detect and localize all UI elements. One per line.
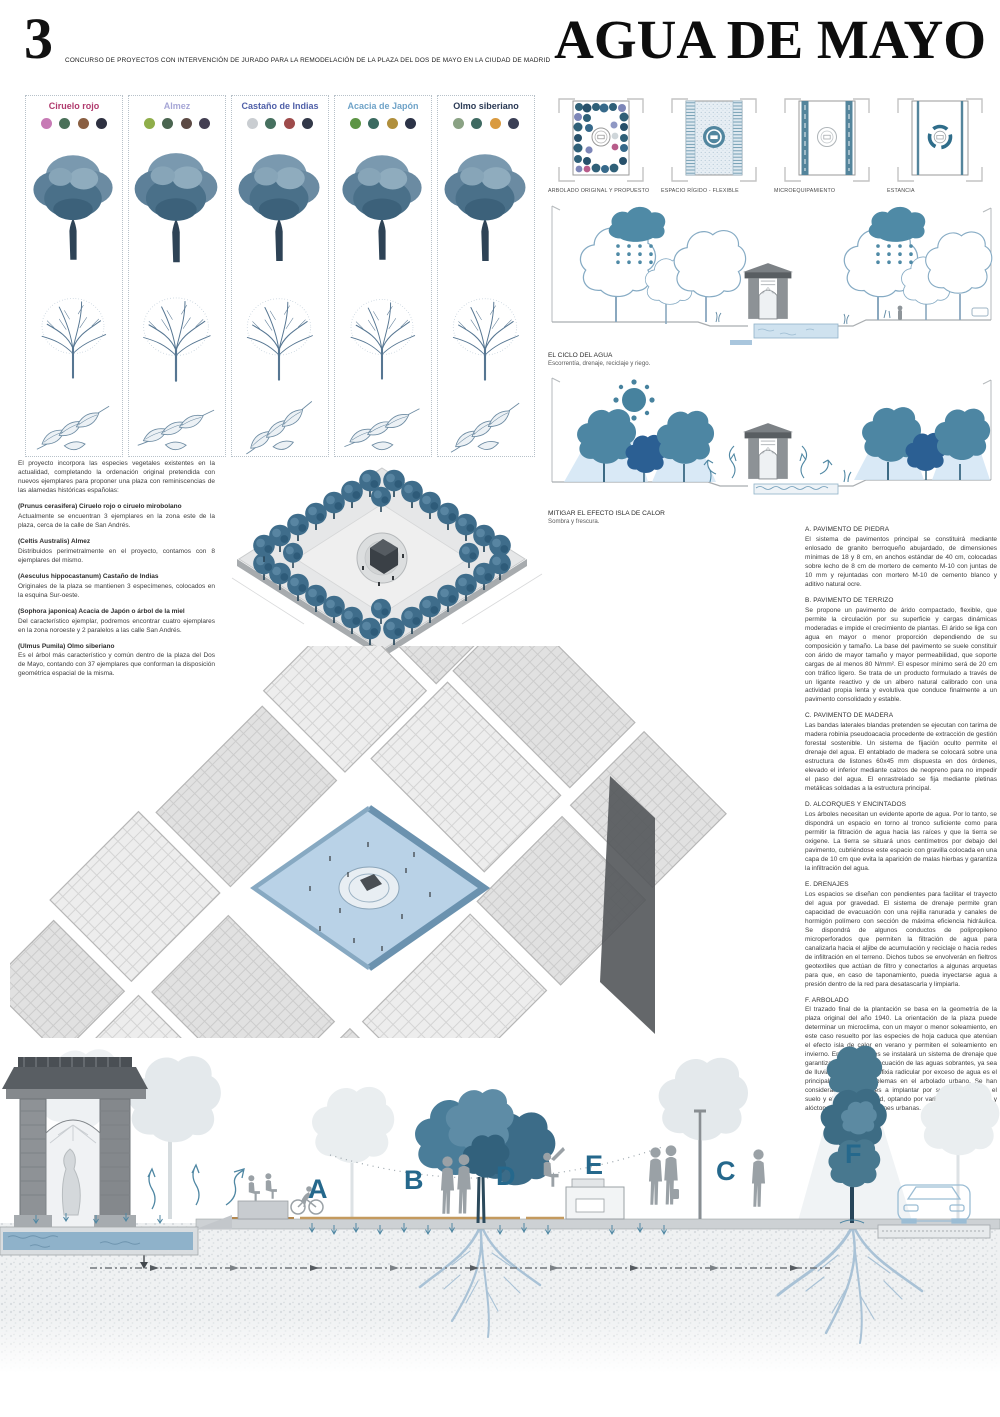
section-marker-b: B	[404, 1167, 424, 1194]
diagram-subtitle: Sombra y frescura.	[548, 518, 788, 525]
diagram-subtitle: Escorrentía, drenaje, reciclaje y riego.	[548, 360, 788, 367]
species-color-dots	[34, 118, 114, 129]
species-note-heading: (Aesculus hippocastanum) Castaño de Indi…	[18, 573, 215, 582]
competition-subtitle: CONCURSO DE PROYECTOS CON INTERVENCIÓN D…	[65, 57, 550, 64]
plan-arbolado-drawing	[548, 95, 654, 185]
plan-arbolado: ARBOLADO ORIGINAL Y PROPUESTO	[548, 95, 654, 194]
species-note: (Prunus cerasifera) Ciruelo rojo o cirue…	[18, 503, 215, 531]
water-cycle-caption: EL CICLO DEL AGUA Escorrentía, drenaje, …	[548, 352, 788, 367]
spec-section-title: D. ALCORQUES Y ENCINTADOS	[805, 801, 997, 810]
page-title: AGUA DE MAYO	[554, 12, 986, 67]
plan-espacio: ESPACIO RÍGIDO - FLEXIBLE	[661, 95, 767, 194]
species-color-dots	[137, 118, 217, 129]
spec-section: A. PAVIMENTO DE PIEDRA El sistema de pav…	[805, 526, 997, 590]
winter-tree-illustration	[438, 277, 532, 389]
winter-tree-illustration	[26, 277, 120, 389]
plan-espacio-drawing	[661, 95, 767, 185]
competition-board: 3 CONCURSO DE PROYECTOS CON INTERVENCIÓN…	[0, 0, 1000, 1417]
spec-text-column: A. PAVIMENTO DE PIEDRA El sistema de pav…	[805, 526, 997, 1121]
spec-section-body: El sistema de pavimentos principal se co…	[805, 536, 997, 590]
species-card-olmo: Olmo siberiano	[437, 95, 535, 457]
plan-microequipamiento-drawing	[774, 95, 880, 185]
winter-tree-illustration	[335, 277, 429, 389]
spec-section-title: B. PAVIMENTO DE TERRIZO	[805, 597, 997, 606]
species-name: Castaño de Indias	[232, 101, 328, 111]
species-note-body: Actualmente se encuentran 3 ejemplares e…	[18, 513, 215, 531]
species-card-castano: Castaño de Indias	[231, 95, 329, 457]
spec-section-body: Se propone un pavimento de árido compact…	[805, 607, 997, 706]
leaf-illustration	[26, 389, 120, 465]
section-marker-d: D	[496, 1163, 516, 1190]
winter-tree-illustration	[129, 277, 223, 389]
section-marker-c: C	[716, 1158, 736, 1185]
summer-tree-illustration	[335, 129, 429, 277]
plan-label: MICROEQUIPAMIENTO	[774, 188, 880, 194]
species-name: Almez	[129, 101, 225, 111]
species-name: Olmo siberiano	[438, 101, 534, 111]
spec-section: D. ALCORQUES Y ENCINTADOS Los árboles ne…	[805, 801, 997, 874]
species-note-body: Del característico ejemplar, podremos en…	[18, 618, 215, 636]
species-note-body: Distribuidos perimetralmente en el proye…	[18, 548, 215, 566]
plaza-axonometric-drawing	[222, 446, 544, 674]
species-note-heading: (Sophora japonica) Acacia de Japón o árb…	[18, 608, 215, 617]
species-name: Acacia de Japón	[335, 101, 431, 111]
spec-section: C. PAVIMENTO DE MADERA Las bandas latera…	[805, 712, 997, 794]
heat-island-section-diagram	[548, 374, 995, 506]
diagram-title: EL CICLO DEL AGUA	[548, 352, 788, 359]
spec-section: B. PAVIMENTO DE TERRIZO Se propone un pa…	[805, 597, 997, 706]
spec-section-title: A. PAVIMENTO DE PIEDRA	[805, 526, 997, 535]
section-marker-a: A	[308, 1176, 328, 1203]
spec-section: E. DRENAJES Los espacios se diseñan con …	[805, 881, 997, 990]
plan-estancia-drawing	[887, 95, 993, 185]
summer-tree-illustration	[129, 129, 223, 277]
leaf-illustration	[129, 389, 223, 465]
summer-tree-illustration	[232, 129, 326, 277]
street-section-drawing	[0, 1037, 1000, 1417]
species-card-acacia: Acacia de Japón	[334, 95, 432, 457]
species-note: (Celtis Australis) Almez Distribuidos pe…	[18, 538, 215, 566]
summer-tree-illustration	[26, 129, 120, 277]
plan-label: ESTANCIA	[887, 188, 993, 194]
species-note-heading: (Celtis Australis) Almez	[18, 538, 215, 547]
spec-section-title: F. ARBOLADO	[805, 997, 997, 1006]
board-number: 3	[24, 10, 53, 68]
plan-label: ARBOLADO ORIGINAL Y PROPUESTO	[548, 188, 654, 194]
species-note: (Aesculus hippocastanum) Castaño de Indi…	[18, 573, 215, 601]
species-color-dots	[343, 118, 423, 129]
species-card-ciruelo-rojo: Ciruelo rojo	[25, 95, 123, 457]
section-marker-e: E	[585, 1152, 603, 1179]
plan-microequipamiento: MICROEQUIPAMIENTO	[774, 95, 880, 194]
spec-section-body: Las bandas laterales blandas pretenden s…	[805, 722, 997, 794]
plan-label: ESPACIO RÍGIDO - FLEXIBLE	[661, 188, 767, 194]
winter-tree-illustration	[232, 277, 326, 389]
intro-paragraph: El proyecto incorpora las especies veget…	[18, 460, 215, 496]
section-marker-f: F	[845, 1141, 862, 1168]
spec-section-body: Los espacios se diseñan con pendientes p…	[805, 891, 997, 990]
summer-tree-illustration	[438, 129, 532, 277]
water-cycle-section-diagram	[548, 200, 995, 348]
species-card-almez: Almez	[128, 95, 226, 457]
aerial-city-view	[10, 646, 790, 1038]
heat-island-caption: MITIGAR EL EFECTO ISLA DE CALOR Sombra y…	[548, 510, 788, 525]
species-name: Ciruelo rojo	[26, 101, 122, 111]
species-note: (Sophora japonica) Acacia de Japón o árb…	[18, 608, 215, 636]
species-color-dots	[446, 118, 526, 129]
diagram-title: MITIGAR EL EFECTO ISLA DE CALOR	[548, 510, 788, 517]
species-note-heading: (Prunus cerasifera) Ciruelo rojo o cirue…	[18, 503, 215, 512]
spec-section-title: E. DRENAJES	[805, 881, 997, 890]
spec-section-title: C. PAVIMENTO DE MADERA	[805, 712, 997, 721]
species-note-body: Originales de la plaza se mantienen 3 es…	[18, 583, 215, 601]
arch-monument	[2, 1057, 148, 1229]
spec-section-body: Los árboles necesitan un evidente aporte…	[805, 811, 997, 874]
plan-estancia: ESTANCIA	[887, 95, 993, 194]
species-color-dots	[240, 118, 320, 129]
